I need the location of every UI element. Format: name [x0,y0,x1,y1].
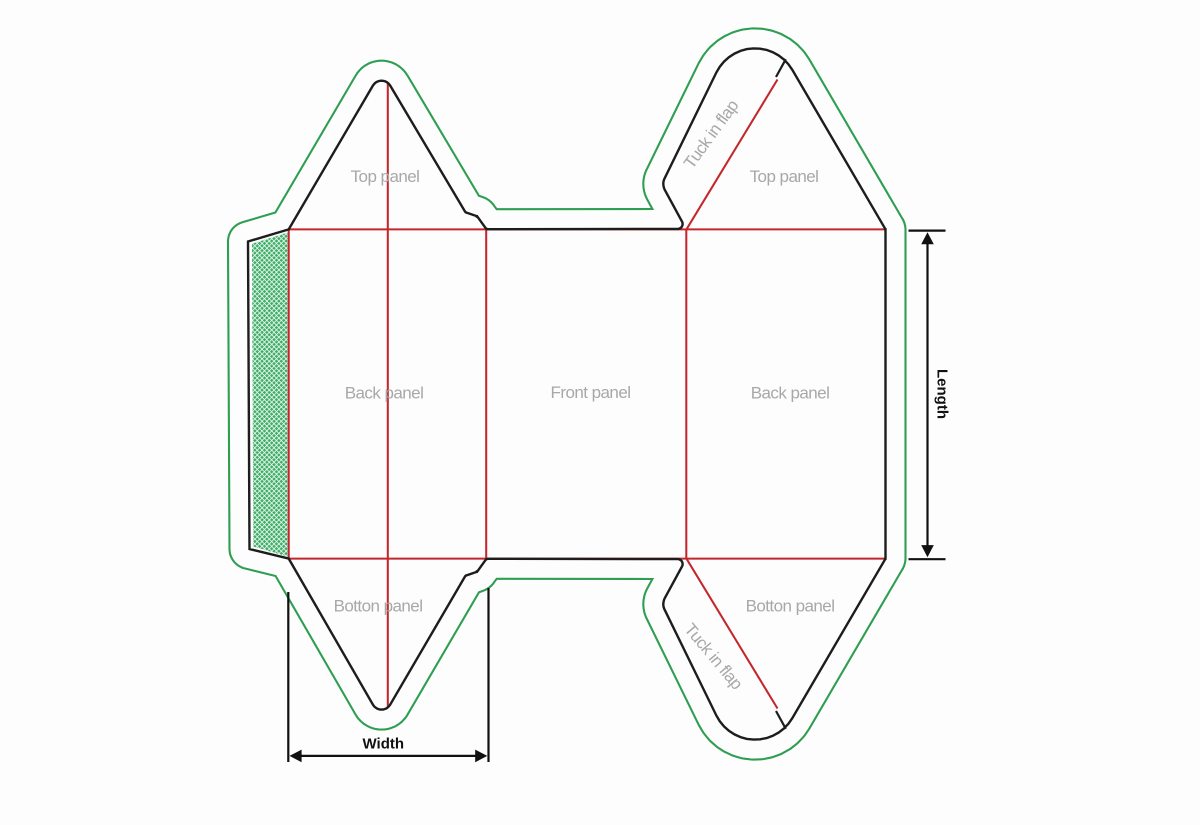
svg-text:Botton panel: Botton panel [746,596,835,615]
svg-text:Front panel: Front panel [551,383,631,402]
svg-text:Width: Width [363,736,405,753]
svg-text:Botton panel: Botton panel [334,596,423,615]
svg-text:Top panel: Top panel [750,167,819,186]
svg-text:Back panel: Back panel [751,383,830,402]
svg-text:Top panel: Top panel [351,167,420,186]
svg-text:Length: Length [934,369,951,419]
svg-text:Back panel: Back panel [345,383,424,402]
